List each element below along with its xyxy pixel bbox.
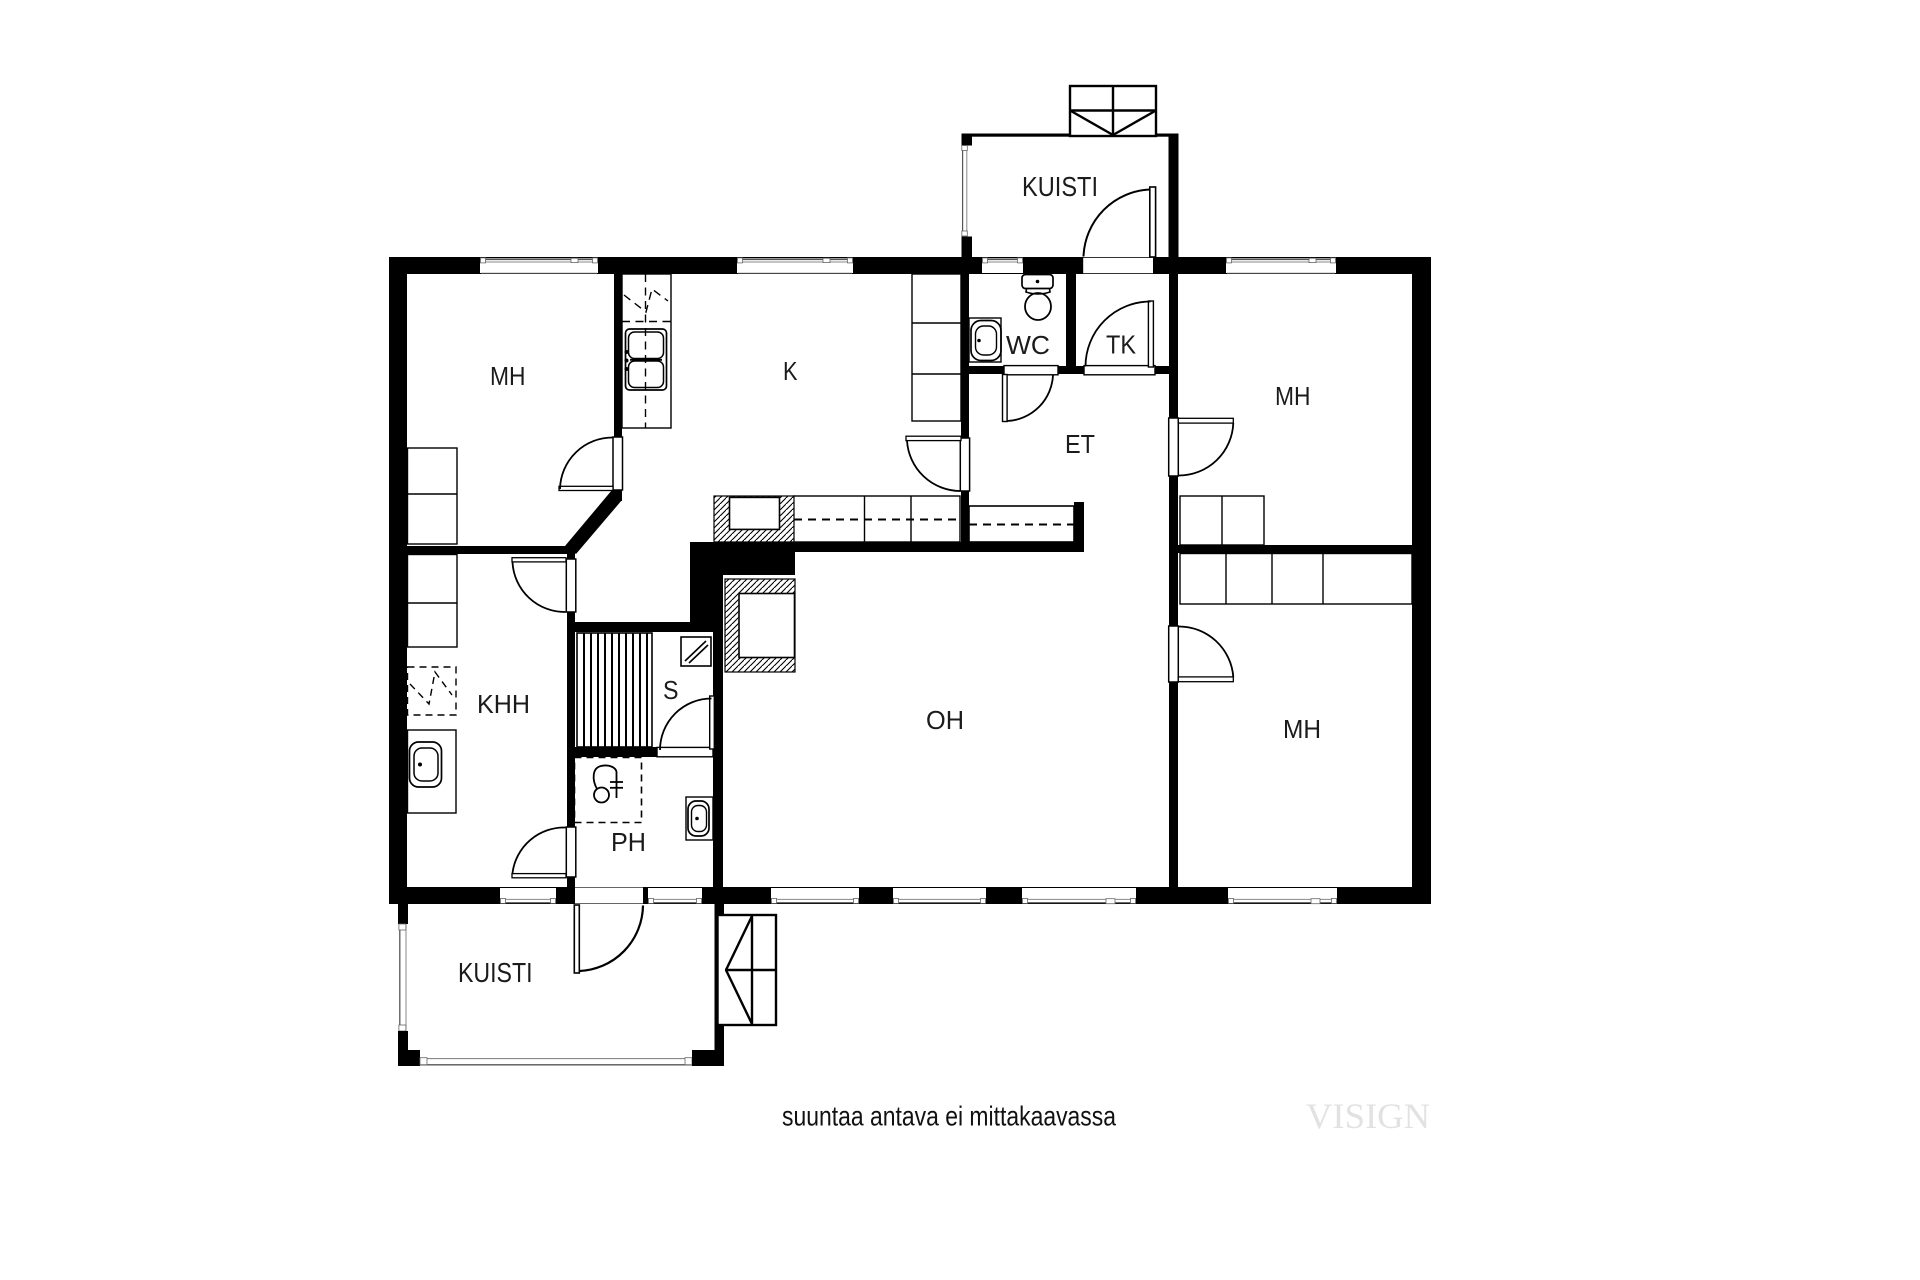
svg-text:VISIGN: VISIGN xyxy=(1306,1096,1430,1136)
svg-text:KHH: KHH xyxy=(477,689,530,719)
svg-text:MH: MH xyxy=(1275,381,1311,411)
svg-text:MH: MH xyxy=(490,361,526,391)
svg-text:PH: PH xyxy=(611,827,646,857)
svg-text:ET: ET xyxy=(1065,429,1095,459)
svg-text:K: K xyxy=(783,356,798,386)
svg-text:suuntaa antava ei mittakaavass: suuntaa antava ei mittakaavassa xyxy=(782,1101,1116,1132)
svg-text:OH: OH xyxy=(926,705,964,735)
svg-text:S: S xyxy=(663,675,679,705)
svg-text:KUISTI: KUISTI xyxy=(458,957,533,988)
svg-text:KUISTI: KUISTI xyxy=(1022,171,1098,202)
svg-text:MH: MH xyxy=(1283,714,1321,744)
svg-text:WC: WC xyxy=(1006,330,1050,360)
svg-text:TK: TK xyxy=(1106,330,1137,360)
